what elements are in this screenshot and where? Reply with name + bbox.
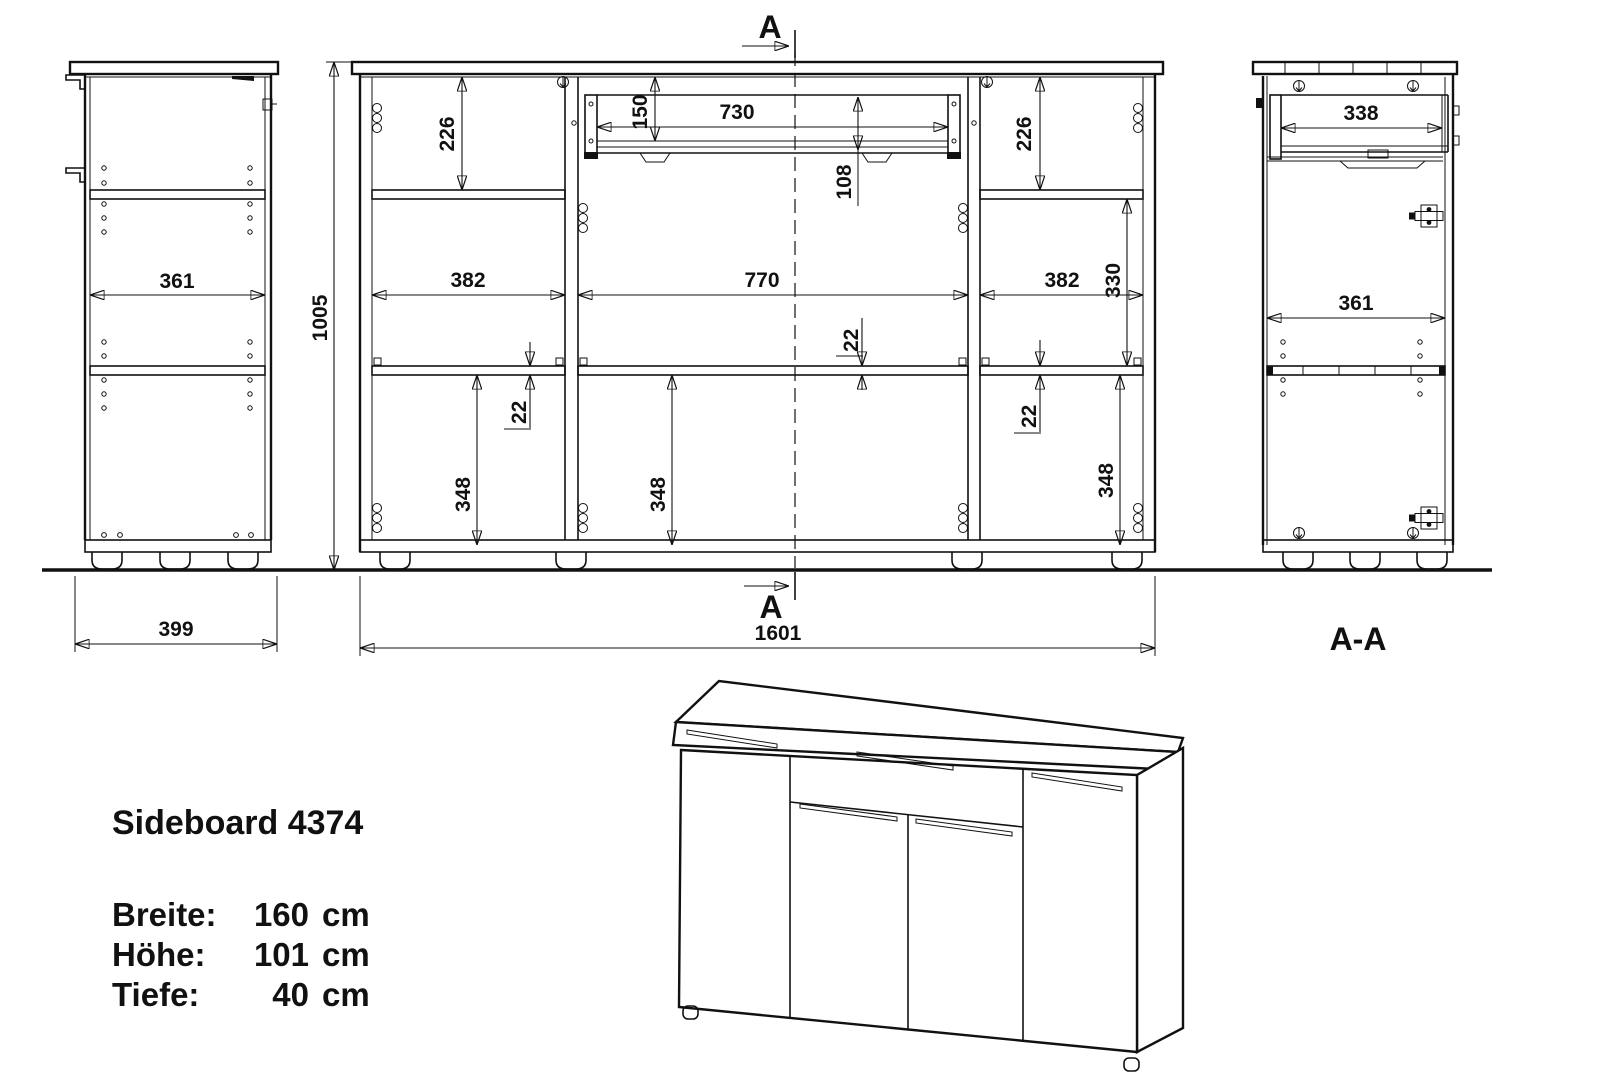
spec-unit: cm	[322, 935, 370, 975]
front-top-panel	[352, 62, 1163, 74]
dim-cell-right: 382	[1044, 269, 1079, 292]
side-view: 361 399	[66, 62, 278, 652]
screw-icon	[982, 77, 993, 88]
dim-cell-bottom-left: 348	[452, 477, 475, 512]
isometric-view	[673, 681, 1183, 1071]
side-base	[85, 540, 271, 552]
spec-label: Breite:	[112, 895, 247, 935]
screw-icon	[558, 77, 569, 88]
dim-side-depth: 399	[158, 618, 193, 641]
dim-section-inner-depth: 361	[1338, 292, 1373, 315]
title-block: Sideboard 4374 Breite: 160 cm Höhe: 101 …	[112, 804, 370, 1015]
side-top-panel	[70, 62, 278, 74]
front-view: A A 1005 226 226 150 730 108 382 770 382…	[309, 9, 1163, 656]
dim-front-height: 1005	[309, 294, 332, 341]
dim-shelf-left: 22	[504, 342, 531, 429]
section-base	[1263, 540, 1453, 552]
dim-drawer-width: 730	[719, 101, 754, 124]
svg-text:22: 22	[840, 329, 863, 352]
technical-drawing-page: 361 399	[0, 0, 1600, 1092]
screw-icon	[1408, 81, 1419, 92]
dim-cell-middle: 770	[744, 269, 779, 292]
section-marker-top: A	[742, 9, 795, 58]
wall-hook-lower	[66, 168, 85, 182]
hinge-marks	[373, 104, 1143, 533]
dim-shelf-right: 22	[1014, 340, 1041, 433]
screw-icon	[1408, 528, 1419, 539]
dim-cell-top-left: 226	[436, 116, 459, 151]
svg-text:22: 22	[508, 401, 531, 424]
screw-icon	[1294, 81, 1305, 92]
hinge-plate-icon	[1409, 205, 1443, 227]
spec-row-height: Höhe: 101 cm	[112, 935, 370, 975]
side-shelf-lower	[90, 366, 265, 375]
product-title: Sideboard 4374	[112, 804, 370, 843]
svg-text:22: 22	[1018, 405, 1041, 428]
dim-below-drawer: 108	[833, 164, 856, 199]
spec-value: 160	[247, 895, 309, 935]
section-letter-top: A	[758, 9, 781, 45]
corner-fitting	[232, 76, 254, 81]
spec-unit: cm	[322, 895, 370, 935]
dim-cell-bottom-middle: 348	[647, 477, 670, 512]
spec-row-depth: Tiefe: 40 cm	[112, 975, 370, 1015]
section-view: 338 361 A-A	[1253, 62, 1459, 657]
screw-icon	[1294, 528, 1305, 539]
dim-drawer-height: 150	[629, 94, 652, 129]
dim-front-width: 1601	[755, 622, 802, 645]
dim-cell-bottom-right: 348	[1095, 463, 1118, 498]
dim-cell-top-right: 226	[1013, 116, 1036, 151]
shelf-pin-holes	[102, 166, 254, 538]
spec-row-width: Breite: 160 cm	[112, 895, 370, 935]
dim-section-drawer-depth: 338	[1343, 102, 1378, 125]
side-shelf-upper	[90, 190, 265, 199]
spec-unit: cm	[322, 975, 370, 1015]
dim-shelf-middle: 22	[836, 318, 863, 390]
spec-label: Tiefe:	[112, 975, 247, 1015]
iso-foot	[1124, 1058, 1139, 1071]
section-view-label: A-A	[1330, 621, 1387, 657]
section-letter-bottom: A	[759, 589, 782, 625]
front-base	[360, 540, 1155, 552]
spec-label: Höhe:	[112, 935, 247, 975]
dim-cell-left: 382	[450, 269, 485, 292]
section-marker-bottom: A	[744, 572, 795, 625]
spec-value: 40	[247, 975, 309, 1015]
section-top-panel	[1253, 62, 1457, 74]
shelf-corner-brackets	[374, 358, 1141, 365]
spec-value: 101	[247, 935, 309, 975]
shelf-pin-holes	[1281, 340, 1422, 396]
dim-side-inner-width: 361	[159, 270, 194, 293]
wall-hook-upper	[66, 75, 85, 89]
iso-side-face	[1137, 748, 1183, 1052]
dim-cell-right-middle: 330	[1102, 263, 1125, 298]
hinge-plate-icon	[1409, 507, 1443, 529]
